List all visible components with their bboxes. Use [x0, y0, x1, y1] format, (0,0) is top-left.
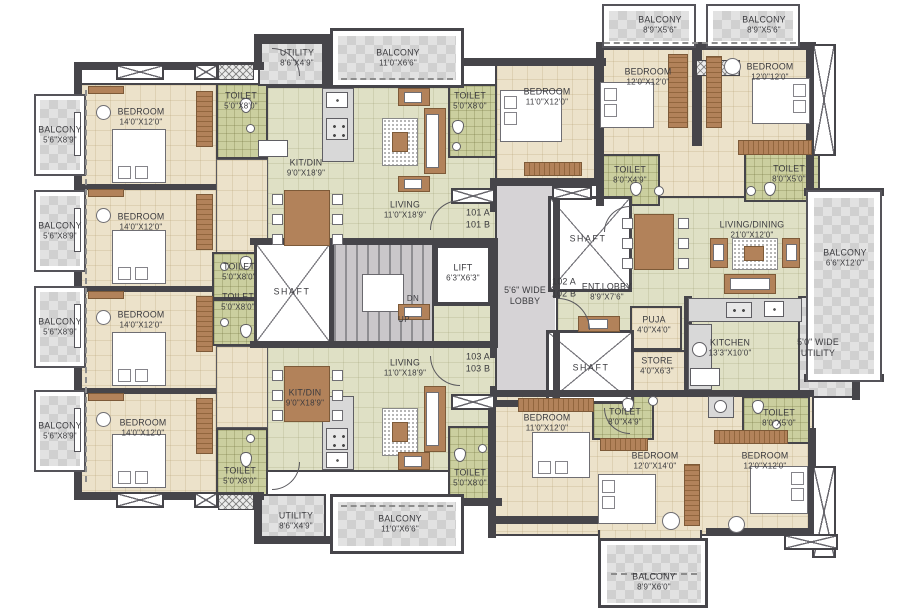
label-unit-103: 103 A103 B — [466, 351, 491, 374]
bed — [532, 432, 590, 478]
label-living: LIVING11'0"X18'9" — [384, 358, 426, 379]
door-arc-utility — [272, 462, 300, 490]
label-livingdining: LIVING/DINING21'0"X12'0" — [720, 220, 785, 241]
wall-segment — [448, 58, 606, 66]
basin-icon — [714, 400, 727, 413]
chair — [96, 310, 111, 325]
label-shaft: SHAFT — [570, 234, 607, 245]
label-toilet: TOILET5'0"X8'0" — [453, 91, 487, 112]
dining-chair — [678, 238, 689, 249]
basin-icon — [692, 342, 707, 357]
wall-segment — [322, 38, 330, 86]
wall-segment — [254, 34, 330, 42]
stove-icon — [726, 302, 752, 318]
label-balcony: BALCONY8'9"X5'6" — [638, 15, 681, 36]
bed — [112, 230, 166, 284]
label-entlobby: ENT.LOBBY8'9"X7'6" — [582, 282, 632, 303]
chair — [728, 516, 745, 533]
dresser — [88, 86, 124, 94]
label-bedroom: BEDROOM14'0"X12'0" — [120, 418, 167, 439]
console-top — [588, 319, 608, 329]
dining-chair — [272, 234, 283, 245]
bed — [112, 332, 166, 386]
appliance — [690, 368, 720, 386]
label-balcony: BALCONY5'6"X8'9" — [38, 221, 81, 242]
wardrobe — [196, 194, 213, 250]
coffee-table — [392, 132, 408, 152]
label-bedroom: BEDROOM11'0"X12'0" — [524, 413, 571, 434]
dining-chair — [678, 218, 689, 229]
wardrobe — [738, 140, 812, 155]
dining-chair — [622, 238, 633, 249]
label-living: LIVING11'0"X18'9" — [384, 200, 426, 221]
wall-segment — [250, 341, 498, 348]
dining-chair — [332, 370, 343, 381]
label-bedroom: BEDROOM12'0"X12'0" — [625, 67, 672, 88]
armchair-seat — [404, 456, 422, 467]
label-balcony: BALCONY5'6"X8'9" — [38, 125, 81, 146]
label-lift: LIFT6'3"X6'3" — [446, 263, 480, 284]
label-unit-102: 102 A102 B — [552, 276, 577, 299]
wardrobe — [714, 430, 788, 444]
label-balcony: BALCONY8'9"X5'6" — [742, 15, 785, 36]
balcony-dash-line — [85, 90, 87, 482]
wardrobe — [524, 162, 582, 176]
stove-icon — [326, 118, 348, 140]
wardrobe — [600, 438, 648, 451]
wall-segment — [490, 178, 602, 186]
dining-chair — [332, 234, 343, 245]
label-toilet: TOILET5'0"X8'0" — [221, 292, 255, 313]
label-balcony: BALCONY11'0"X6'6" — [376, 48, 419, 69]
wardrobe — [196, 296, 213, 352]
hatched-wall — [218, 64, 254, 80]
wall-segment — [254, 494, 262, 540]
coffee-table — [392, 422, 408, 442]
label-utility-wide: 5'0" WIDEUTILITY — [797, 337, 839, 359]
bed — [112, 434, 166, 488]
passage-floor — [216, 346, 268, 428]
label-toilet: TOILET8'0"X5'0" — [772, 164, 806, 185]
wardrobe — [518, 398, 594, 412]
window-box — [116, 64, 164, 80]
sink-icon — [326, 92, 348, 108]
dining-chair — [332, 194, 343, 205]
bed — [598, 474, 656, 524]
label-puja: PUJA4'0"X4'0" — [637, 315, 671, 336]
stove-icon — [326, 428, 348, 450]
label-lobby: 5'6" WIDELOBBY — [504, 285, 546, 307]
label-shaft: SHAFT — [274, 287, 311, 298]
balcony-dash-line — [604, 42, 796, 44]
label-up: UP — [398, 315, 410, 325]
dining-chair — [272, 390, 283, 401]
label-unit-101: 101 A101 B — [466, 207, 491, 230]
basin-icon — [746, 186, 756, 196]
label-balcony: BALCONY11'0"X6'6" — [378, 514, 421, 535]
duct-box — [552, 186, 592, 200]
label-kitdin: KIT/DIN9'0"X18'9" — [286, 388, 324, 409]
window-box — [116, 492, 164, 508]
label-bedroom: BEDROOM12'0"X14'0" — [632, 451, 679, 472]
bed — [600, 82, 654, 128]
hatched-wall — [218, 494, 254, 510]
dining-table — [634, 214, 674, 270]
label-balcony: BALCONY6'6"X12'0" — [823, 248, 866, 269]
armchair-seat — [404, 179, 422, 189]
label-toilet: TOILET8'0"X5'0" — [762, 408, 796, 429]
bed — [752, 78, 810, 124]
chair — [96, 208, 111, 223]
armchair-seat — [713, 244, 724, 261]
sink-icon — [326, 452, 348, 468]
sofa-seat — [730, 278, 770, 290]
label-bedroom: BEDROOM14'0"X12'0" — [118, 212, 165, 233]
dining-chair — [272, 370, 283, 381]
dining-chair — [272, 410, 283, 421]
label-toilet: TOILET5'0"X8'0" — [453, 468, 487, 489]
duct-box — [194, 64, 218, 80]
label-toilet: TOILET8'0"X4'9" — [608, 407, 642, 428]
chair — [96, 412, 111, 427]
label-bedroom: BEDROOM14'0"X12'0" — [118, 107, 165, 128]
bed — [112, 129, 166, 183]
basin-icon — [478, 444, 487, 453]
wardrobe — [684, 464, 700, 526]
label-store: STORE4'0"X6'3" — [640, 356, 674, 377]
basin-icon — [648, 396, 658, 406]
label-kitchen: KITCHEN13'3"X10'0" — [709, 338, 752, 359]
chair — [96, 105, 111, 120]
sofa-seat — [426, 114, 439, 168]
label-utility: UTILITY8'6"X4'9" — [279, 511, 313, 532]
wardrobe — [196, 398, 213, 454]
dining-chair — [272, 214, 283, 225]
label-bedroom: BEDROOM12'0"12'0" — [747, 62, 794, 83]
basin-icon — [246, 434, 255, 443]
dining-chair — [332, 410, 343, 421]
armchair-seat — [786, 244, 797, 261]
floor-plan: BALCONY5'6"X8'9" BALCONY5'6"X8'9" BALCON… — [0, 0, 900, 616]
label-balcony: BALCONY5'6"X8'9" — [38, 317, 81, 338]
wardrobe — [668, 54, 688, 128]
basin-icon — [654, 186, 664, 196]
basin-icon — [220, 318, 229, 327]
label-balcony: BALCONY5'6"X8'9" — [38, 421, 81, 442]
dining-chair — [332, 214, 343, 225]
duct-box — [784, 534, 838, 550]
chair — [724, 58, 741, 75]
label-bedroom: BEDROOM12'0"X12'0" — [742, 451, 789, 472]
label-bedroom: BEDROOM14'0"X12'0" — [118, 310, 165, 331]
dining-chair — [622, 258, 633, 269]
wall-segment — [254, 536, 334, 544]
wardrobe — [706, 56, 722, 128]
wall-segment — [490, 240, 498, 346]
label-utility: UTILITY8'6"X4'9" — [280, 48, 314, 69]
armchair-seat — [404, 92, 422, 103]
label-toilet: TOILET5'0"X8'0" — [222, 262, 256, 283]
chair — [662, 512, 680, 530]
label-toilet: TOILET8'0"X4'9" — [613, 165, 647, 186]
basin-icon — [246, 124, 255, 133]
label-kitdin: KIT/DIN9'0"X18'9" — [287, 158, 325, 179]
sofa-seat — [426, 392, 439, 446]
dining-table — [284, 190, 330, 246]
label-balcony: BALCONY8'9"X6'0" — [632, 572, 675, 593]
dresser — [88, 291, 124, 299]
bed — [750, 466, 808, 514]
coffee-table — [744, 246, 764, 261]
sink-icon — [764, 301, 784, 317]
dresser — [88, 189, 124, 197]
dining-chair — [678, 258, 689, 269]
label-bedroom: BEDROOM11'0"X12'0" — [524, 87, 571, 108]
duct-box — [451, 394, 495, 410]
label-shaft: SHAFT — [573, 363, 610, 374]
label-toilet: TOILET5'0"X8'0" — [223, 466, 257, 487]
label-dn: DN — [407, 294, 419, 304]
duct-tall — [812, 44, 836, 156]
dresser — [88, 393, 124, 401]
fridge — [258, 140, 288, 157]
wardrobe — [196, 91, 213, 147]
duct-box — [194, 492, 218, 508]
wall-segment — [488, 516, 602, 524]
basin-icon — [452, 142, 461, 151]
label-toilet: TOILET5'0"X8'0" — [224, 91, 258, 112]
dining-chair — [272, 194, 283, 205]
dining-chair — [332, 390, 343, 401]
